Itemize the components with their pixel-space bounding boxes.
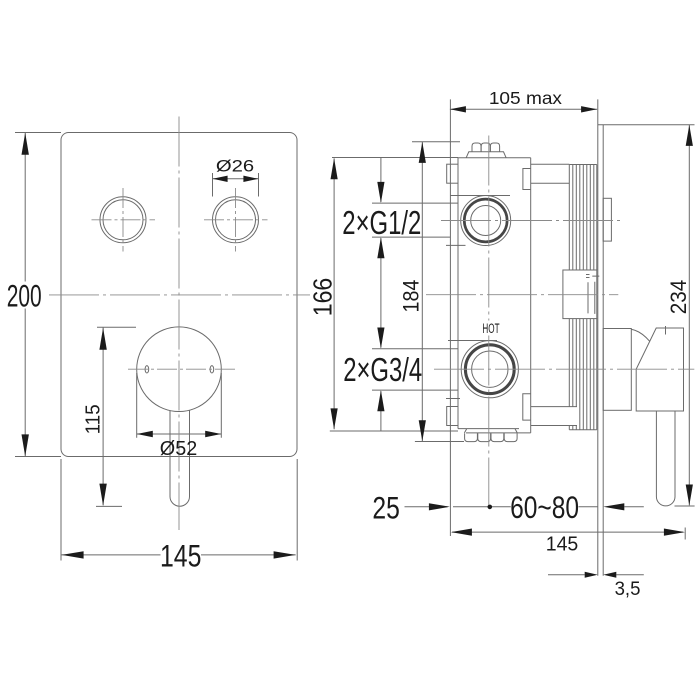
svg-text:3,5: 3,5 [615, 578, 641, 599]
svg-text:184: 184 [399, 280, 423, 313]
svg-text:234: 234 [666, 280, 691, 315]
svg-text:145: 145 [546, 533, 579, 556]
svg-text:HOT: HOT [482, 322, 499, 337]
svg-text:2×G1/2: 2×G1/2 [342, 205, 421, 242]
svg-text:105 max: 105 max [489, 88, 562, 108]
svg-text:60~80: 60~80 [510, 489, 579, 525]
svg-text:Ø26: Ø26 [216, 156, 254, 175]
svg-text:200: 200 [7, 278, 42, 313]
svg-text:25: 25 [372, 490, 399, 526]
svg-text:115: 115 [82, 404, 105, 434]
svg-text:166: 166 [310, 278, 338, 316]
svg-text:2×G3/4: 2×G3/4 [343, 352, 422, 389]
svg-text:Ø52: Ø52 [160, 438, 197, 460]
svg-text:145: 145 [160, 539, 201, 575]
